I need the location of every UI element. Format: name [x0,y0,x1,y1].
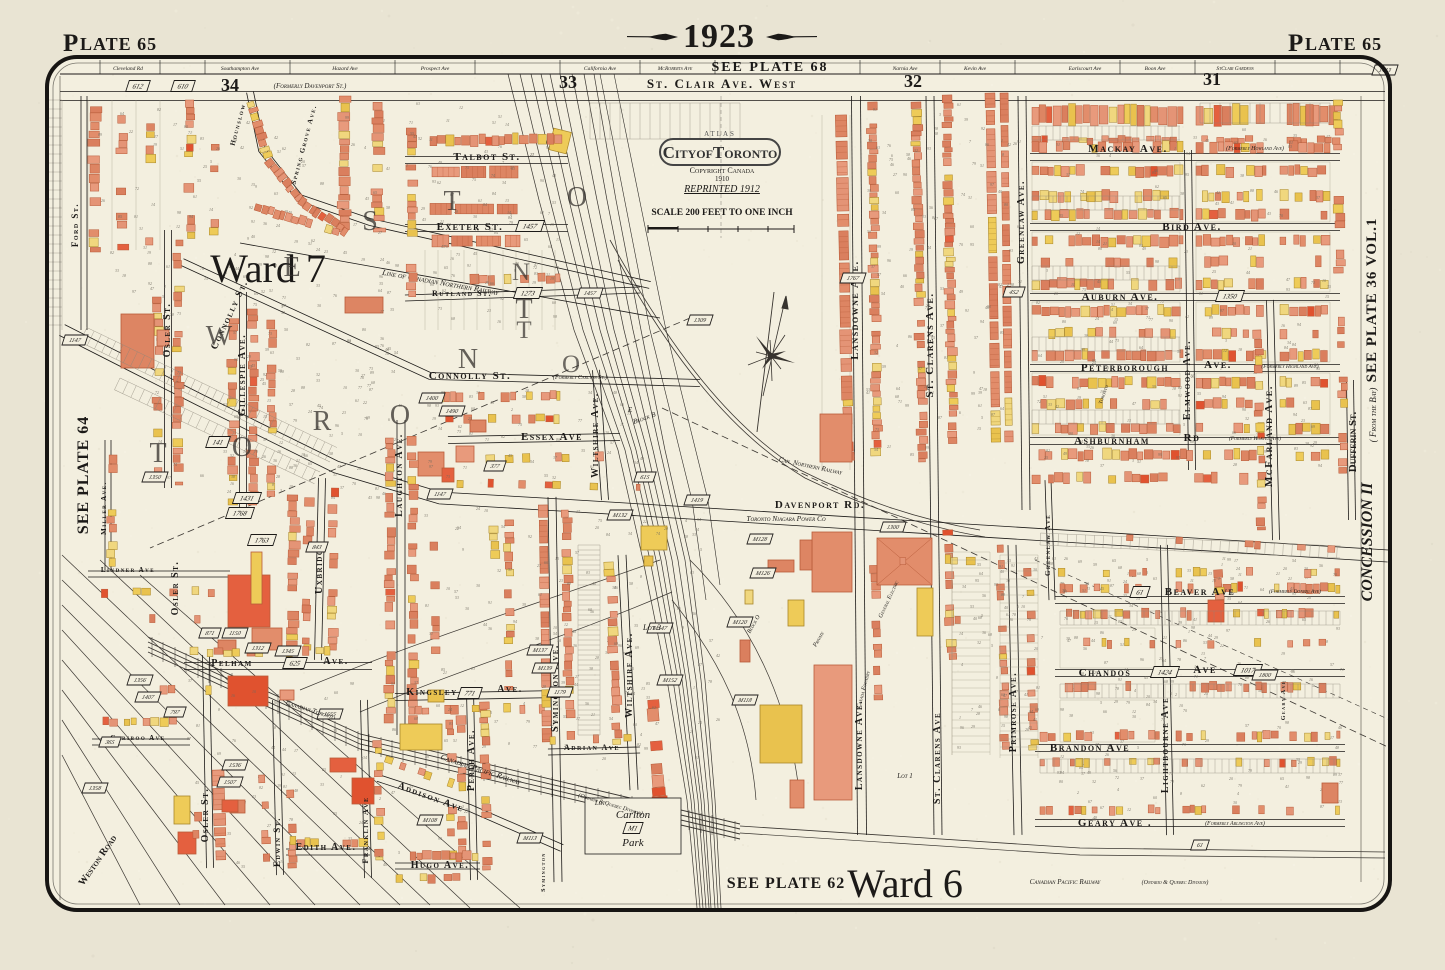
svg-text:2: 2 [690,729,692,734]
svg-text:21: 21 [1248,246,1252,251]
svg-text:Osler St.: Osler St. [170,561,181,616]
svg-text:20: 20 [1229,776,1233,781]
svg-text:82: 82 [110,250,114,255]
svg-text:78: 78 [289,817,293,822]
svg-text:1: 1 [959,715,961,720]
svg-text:76: 76 [498,144,502,149]
svg-text:69: 69 [1078,559,1082,564]
svg-text:8: 8 [1002,152,1004,157]
svg-text:74: 74 [656,531,660,536]
svg-text:Lansdowne Ave.: Lansdowne Ave. [854,700,865,790]
svg-text:11: 11 [1190,578,1194,583]
svg-text:24: 24 [227,489,231,494]
svg-text:40: 40 [973,616,977,621]
svg-text:99: 99 [644,746,648,751]
svg-text:31: 31 [1203,69,1221,89]
svg-text:55: 55 [977,562,981,567]
svg-text:76: 76 [232,738,236,743]
svg-text:23: 23 [252,794,256,799]
svg-text:75: 75 [472,177,476,182]
svg-text:96: 96 [887,258,891,263]
svg-text:95: 95 [975,578,979,583]
svg-text:Gillespie Ave.: Gillespie Ave. [237,334,248,416]
svg-text:33: 33 [559,72,577,92]
svg-text:79: 79 [1238,783,1242,788]
svg-text:81: 81 [1036,685,1040,690]
svg-text:M108: M108 [421,818,438,824]
svg-text:83: 83 [449,721,453,726]
svg-text:34: 34 [502,180,506,185]
svg-text:62: 62 [437,180,441,185]
svg-text:42: 42 [1185,314,1189,319]
svg-text:Ave.: Ave. [1204,359,1232,371]
svg-text:38: 38 [1084,333,1088,338]
svg-text:Talbot St.: Talbot St. [453,151,520,163]
svg-text:46: 46 [1338,725,1342,730]
svg-text:63: 63 [690,570,694,575]
svg-text:68: 68 [1137,571,1141,576]
svg-text:9: 9 [682,625,684,630]
svg-text:61: 61 [957,102,961,107]
svg-text:64: 64 [979,571,983,576]
svg-text:Osler St.: Osler St. [200,788,211,843]
svg-text:26: 26 [351,142,355,147]
svg-text:18: 18 [1238,347,1242,352]
svg-text:45: 45 [473,251,477,256]
svg-text:73: 73 [555,265,559,270]
svg-text:(Formerly Arlington Ave): (Formerly Arlington Ave) [1205,820,1265,827]
svg-text:30: 30 [1006,578,1010,583]
svg-text:11: 11 [1222,556,1226,561]
svg-text:69: 69 [1311,424,1315,429]
svg-text:84: 84 [1152,170,1156,175]
svg-text:84: 84 [1292,342,1296,347]
svg-text:13: 13 [267,398,271,403]
svg-text:(Formerly Davenport St.): (Formerly Davenport St.) [274,82,347,90]
svg-text:1: 1 [1001,138,1003,143]
svg-text:64: 64 [1038,353,1042,358]
svg-text:95: 95 [994,582,998,587]
svg-text:74: 74 [1080,189,1084,194]
svg-text:36: 36 [273,458,277,463]
svg-text:32: 32 [497,568,501,573]
svg-text:32: 32 [316,372,320,377]
svg-text:23: 23 [292,771,296,776]
svg-text:1419: 1419 [690,497,704,504]
svg-text:44: 44 [1246,270,1250,275]
svg-text:38: 38 [535,636,539,641]
svg-text:33: 33 [223,449,227,454]
svg-text:83: 83 [586,570,590,575]
svg-text:6: 6 [1017,604,1019,609]
svg-text:81: 81 [1199,291,1203,296]
svg-text:35: 35 [227,831,231,836]
svg-text:64: 64 [378,288,382,293]
svg-text:81: 81 [134,214,138,219]
svg-text:38: 38 [612,585,616,590]
svg-text:86: 86 [908,334,912,339]
svg-text:76: 76 [451,273,455,278]
svg-text:82: 82 [637,742,641,747]
svg-text:68: 68 [414,716,418,721]
svg-text:70: 70 [1027,617,1031,622]
svg-text:39: 39 [1066,636,1070,641]
svg-text:Franklin Ave: Franklin Ave [361,797,370,864]
svg-text:39: 39 [1170,679,1174,684]
svg-text:26: 26 [716,717,720,722]
svg-text:65: 65 [1280,776,1284,781]
svg-text:9: 9 [462,547,464,552]
svg-text:92: 92 [981,126,985,131]
svg-text:88: 88 [148,261,152,266]
svg-text:1300: 1300 [886,525,900,531]
svg-text:64: 64 [120,111,124,116]
svg-text:3: 3 [1046,268,1048,273]
svg-text:71: 71 [1340,667,1344,672]
svg-text:29: 29 [1178,620,1182,625]
svg-text:81: 81 [944,355,948,360]
svg-text:91: 91 [695,755,699,760]
svg-text:94: 94 [1297,322,1301,327]
svg-text:25: 25 [1044,455,1048,460]
svg-text:4: 4 [1134,688,1136,693]
svg-text:55: 55 [197,178,201,183]
svg-text:19: 19 [550,222,554,227]
svg-text:31: 31 [546,272,550,277]
svg-text:64: 64 [1139,345,1143,350]
svg-text:61: 61 [540,210,544,215]
svg-text:69: 69 [614,641,618,646]
svg-text:80: 80 [1059,779,1063,784]
svg-text:42: 42 [246,120,250,125]
svg-text:Southampton Ave: Southampton Ave [221,66,260,72]
svg-text:60: 60 [970,224,974,229]
svg-text:1800: 1800 [1258,673,1272,679]
svg-text:Adrian Ave: Adrian Ave [564,743,620,752]
svg-text:61: 61 [538,592,542,597]
svg-text:94: 94 [1186,151,1190,156]
svg-text:1: 1 [693,685,695,690]
svg-text:M152: M152 [661,678,678,684]
svg-text:871: 871 [204,631,215,637]
svg-text:74: 74 [173,462,177,467]
svg-text:59: 59 [1093,562,1097,567]
svg-text:P: P [63,30,78,57]
svg-text:88: 88 [1074,635,1078,640]
svg-text:5: 5 [210,159,212,164]
svg-text:89: 89 [1333,772,1337,777]
svg-text:91: 91 [873,107,877,112]
svg-text:35: 35 [1123,593,1127,598]
svg-text:66: 66 [1103,709,1107,714]
svg-text:5: 5 [1137,745,1139,750]
svg-text:5: 5 [1312,683,1314,688]
svg-text:58: 58 [329,451,333,456]
svg-text:O: O [232,432,252,463]
svg-text:80: 80 [430,282,434,287]
svg-text:29: 29 [1114,699,1118,704]
svg-text:73: 73 [456,252,460,257]
svg-text:1179: 1179 [553,690,566,696]
svg-text:66: 66 [1291,669,1295,674]
svg-text:20: 20 [357,466,361,471]
svg-text:12: 12 [460,703,464,708]
svg-text:51: 51 [498,114,502,119]
svg-text:80: 80 [1004,202,1008,207]
svg-text:65: 65 [308,461,312,466]
svg-text:30: 30 [237,176,241,181]
svg-text:88: 88 [1001,592,1005,597]
svg-text:61: 61 [355,398,359,403]
svg-text:51: 51 [1120,642,1124,647]
svg-text:64: 64 [896,386,900,391]
svg-text:10: 10 [358,432,362,437]
svg-text:34: 34 [962,584,966,589]
svg-text:1350: 1350 [148,475,162,481]
svg-text:53: 53 [940,286,944,291]
svg-text:30: 30 [1033,567,1037,572]
svg-text:62: 62 [1155,184,1159,189]
svg-text:St. Clarens Ave.: St. Clarens Ave. [924,292,936,397]
svg-text:66: 66 [200,473,204,478]
svg-text:56: 56 [590,609,594,614]
svg-text:60: 60 [544,560,548,565]
svg-text:M128: M128 [751,537,768,543]
svg-text:81: 81 [469,431,473,436]
svg-text:80: 80 [1098,246,1102,251]
svg-text:43: 43 [251,363,255,368]
svg-text:61: 61 [166,264,170,269]
svg-text:Kingsley: Kingsley [406,687,457,698]
svg-text:70: 70 [1333,572,1337,577]
svg-text:51: 51 [391,681,395,686]
svg-text:25: 25 [322,767,326,772]
svg-text:82: 82 [306,342,310,347]
svg-text:88: 88 [301,385,305,390]
svg-text:44: 44 [574,682,578,687]
svg-text:45: 45 [262,381,266,386]
svg-text:20: 20 [595,525,599,530]
svg-text:9: 9 [255,184,257,189]
svg-text:90: 90 [540,178,544,183]
svg-text:Bird Ave.: Bird Ave. [1162,221,1221,233]
svg-text:26: 26 [485,280,489,285]
svg-text:54: 54 [394,350,398,355]
svg-text:5: 5 [398,850,400,855]
svg-text:32: 32 [977,640,981,645]
svg-text:Chandos: Chandos [1079,667,1132,679]
svg-text:15: 15 [1001,723,1005,728]
svg-text:4: 4 [896,343,898,348]
svg-text:85: 85 [646,681,650,686]
svg-text:62: 62 [1201,783,1205,788]
svg-text:Symington: Symington [541,852,547,892]
svg-text:19: 19 [550,276,554,281]
svg-text:19: 19 [294,239,298,244]
svg-text:85: 85 [1000,330,1004,335]
svg-text:33: 33 [316,378,320,383]
svg-text:28: 28 [934,126,938,131]
svg-text:35: 35 [581,448,585,453]
svg-text:25: 25 [468,416,472,421]
svg-text:22: 22 [464,809,468,814]
svg-text:70: 70 [1279,213,1283,218]
svg-text:26: 26 [273,700,277,705]
svg-text:85: 85 [441,667,445,672]
svg-text:29: 29 [971,724,975,729]
svg-text:13: 13 [1212,578,1216,583]
svg-text:59: 59 [882,364,886,369]
svg-text:Ave: Ave [1193,664,1217,676]
svg-text:21: 21 [1276,571,1280,576]
svg-text:58: 58 [934,131,938,136]
svg-text:55: 55 [1197,391,1201,396]
svg-text:20: 20 [1307,595,1311,600]
svg-text:26: 26 [101,198,105,203]
svg-text:90: 90 [1169,318,1173,323]
svg-text:51: 51 [277,149,281,154]
svg-text:4: 4 [1111,307,1113,312]
svg-text:19: 19 [1077,395,1081,400]
svg-text:35: 35 [379,281,383,286]
svg-text:21: 21 [1103,241,1107,246]
svg-text:P: P [1288,30,1303,57]
svg-text:1358: 1358 [88,786,102,792]
svg-text:Copyright Canada: Copyright Canada [690,166,755,175]
svg-text:N: N [458,344,478,375]
svg-text:46: 46 [907,156,911,161]
svg-text:4: 4 [1117,787,1119,792]
svg-text:M120: M120 [731,620,748,626]
svg-text:40: 40 [1000,569,1004,574]
svg-text:25: 25 [333,728,337,733]
svg-text:Boon Ave: Boon Ave [1145,66,1166,72]
svg-text:50: 50 [868,138,872,143]
svg-text:28: 28 [595,655,599,660]
svg-text:65: 65 [1234,140,1238,145]
svg-text:69: 69 [366,415,370,420]
svg-text:M118: M118 [736,698,752,704]
svg-text:Davenport Rd.: Davenport Rd. [775,499,865,511]
svg-text:71: 71 [409,120,413,125]
svg-text:89: 89 [1209,315,1213,320]
svg-text:56: 56 [929,205,933,210]
svg-text:42: 42 [1055,404,1059,409]
svg-text:9: 9 [973,370,975,375]
svg-text:18: 18 [122,273,126,278]
svg-text:82: 82 [1046,448,1050,453]
svg-text:41: 41 [324,696,328,701]
svg-text:615: 615 [639,475,650,481]
svg-text:34: 34 [391,369,395,374]
svg-text:55: 55 [563,714,567,719]
svg-text:4: 4 [961,662,963,667]
svg-text:64: 64 [1162,658,1166,663]
svg-text:M126: M126 [754,571,772,577]
svg-text:Lot 1: Lot 1 [896,772,913,780]
svg-text:33: 33 [1066,172,1070,177]
svg-text:24: 24 [1095,316,1099,321]
svg-text:23: 23 [1184,249,1188,254]
svg-text:54: 54 [553,631,557,636]
svg-text:45: 45 [195,780,199,785]
svg-text:30: 30 [1233,800,1237,805]
svg-text:26: 26 [262,454,266,459]
svg-text:3: 3 [1132,458,1134,463]
svg-text:1: 1 [383,118,385,123]
svg-text:40: 40 [900,284,904,289]
svg-text:M137: M137 [531,648,549,654]
svg-text:82: 82 [1036,300,1040,305]
svg-text:REPRINTED 1912: REPRINTED 1912 [683,184,760,195]
svg-text:22: 22 [455,526,459,531]
svg-text:T: T [149,438,166,469]
svg-text:Greenlaw Ave: Greenlaw Ave [1044,514,1052,576]
svg-text:29: 29 [1313,440,1317,445]
svg-text:76: 76 [1064,616,1068,621]
svg-text:44: 44 [1208,633,1212,638]
svg-text:Wiltshire Ave.: Wiltshire Ave. [624,632,635,718]
svg-text:22: 22 [129,129,133,134]
svg-text:53: 53 [552,200,556,205]
svg-text:38: 38 [589,666,593,671]
svg-text:91: 91 [488,600,492,605]
svg-text:99: 99 [877,244,881,249]
svg-text:63: 63 [270,350,274,355]
svg-text:St. Clarens Ave: St. Clarens Ave [932,712,943,804]
svg-text:70: 70 [1183,708,1187,713]
svg-text:89: 89 [370,370,374,375]
svg-text:36: 36 [293,463,297,468]
svg-text:54: 54 [1292,558,1296,563]
svg-text:93: 93 [957,745,961,750]
svg-text:35: 35 [1059,213,1063,218]
svg-text:28: 28 [276,474,280,479]
svg-text:86: 86 [1009,617,1013,622]
svg-text:31: 31 [1056,142,1060,147]
svg-text:13: 13 [556,237,560,242]
svg-text:56: 56 [1319,563,1323,568]
svg-text:98: 98 [1010,282,1014,287]
svg-text:St. Clair Ave. West: St. Clair Ave. West [647,76,797,91]
svg-text:46: 46 [978,704,982,709]
svg-text:21: 21 [887,444,891,449]
svg-text:49: 49 [959,289,963,294]
svg-text:30: 30 [1132,714,1136,719]
svg-text:59: 59 [265,347,269,352]
svg-text:96: 96 [433,270,437,275]
svg-text:76: 76 [428,164,432,169]
svg-text:33: 33 [115,268,119,273]
svg-text:5: 5 [1183,422,1185,427]
svg-text:10: 10 [343,385,347,390]
svg-text:29: 29 [421,206,425,211]
svg-text:43: 43 [368,495,372,500]
svg-text:93: 93 [435,403,439,408]
svg-text:86: 86 [1100,630,1104,635]
svg-text:28: 28 [542,684,546,689]
svg-text:96: 96 [1140,657,1144,662]
svg-text:20: 20 [1146,694,1150,699]
svg-text:99: 99 [1158,452,1162,457]
svg-text:75: 75 [465,165,469,170]
svg-text:4: 4 [361,756,363,761]
svg-text:98: 98 [1155,259,1159,264]
svg-text:20: 20 [698,720,702,725]
svg-text:5: 5 [1100,700,1102,705]
svg-text:8: 8 [218,707,220,712]
svg-text:44: 44 [282,747,286,752]
